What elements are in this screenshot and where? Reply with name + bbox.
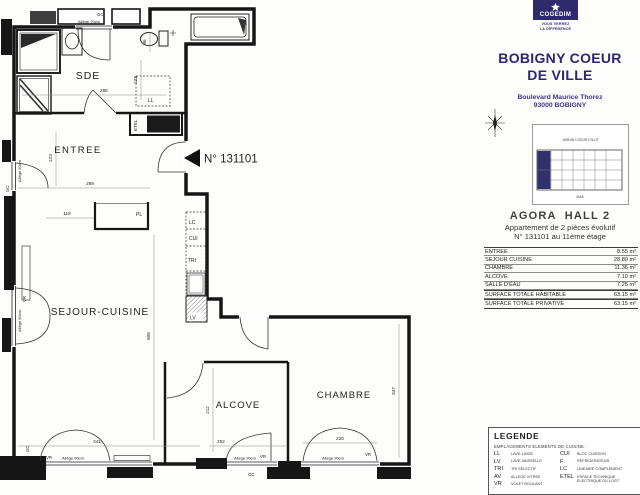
legend-item: LLLAVE-LINGE xyxy=(494,451,560,457)
dim-252: 252 xyxy=(217,439,225,444)
project-title: BOBIGNY COEUR DE VILLE xyxy=(482,50,638,84)
dim-608: 608 xyxy=(146,332,151,340)
label-allege-90-left1: Allège 90cm xyxy=(17,159,22,182)
label-tri: TRI xyxy=(188,258,196,264)
cogedim-logo: COGEDIM xyxy=(533,0,578,20)
label-gc-bottom: GC xyxy=(248,472,255,477)
legend-abbr: LL xyxy=(494,451,511,457)
legend: LEGENDE EMPLACEMENTS ELEMENTS DE CUISINE… xyxy=(488,427,640,495)
legend-desc: LAVE-VAISSELLE xyxy=(511,459,542,464)
legend-abbr: F xyxy=(560,459,577,465)
label-gc-bottomleft: GC xyxy=(25,445,30,452)
unit-number-text: N° 131101 xyxy=(204,154,258,166)
row-value: 28.89 m² xyxy=(614,257,636,263)
address-line1: Boulevard Maurice Thorez xyxy=(482,94,638,102)
legend-desc: BLOC CUISSON xyxy=(577,451,606,456)
label-lc: LC xyxy=(189,220,196,226)
dim-341: 341 xyxy=(93,439,101,444)
legend-desc: REFRIGERATEUR xyxy=(577,459,609,464)
cogedim-star-icon xyxy=(551,3,560,11)
row-label: ENTREE xyxy=(485,249,508,255)
dim-347: 347 xyxy=(391,387,396,395)
apartment-unit-line: N° 131101 au 11ème étage xyxy=(482,232,638,241)
shower xyxy=(17,30,60,73)
legend-abbr: AV xyxy=(494,474,511,480)
row-label: SALLE D'EAU xyxy=(485,282,521,288)
dim-289: 289 xyxy=(86,181,94,186)
table-row-total-privative: SURFACE TOTALE PRIVATIVE63.15 m² xyxy=(484,299,638,307)
scanned-floorplan-page: { "branding": { "logo_text": "COGEDIM", … xyxy=(0,0,640,480)
row-value: 7.25 m² xyxy=(617,282,636,288)
table-row: CHAMBRE11.36 m² xyxy=(484,265,638,273)
table-row: ENTREE8.55 m² xyxy=(484,248,638,256)
compass-icon xyxy=(482,108,508,138)
dim-118: 118 xyxy=(63,211,71,216)
row-label: SEJOUR CUISINE xyxy=(485,257,532,263)
legend-subtitle: EMPLACEMENTS ELEMENTS DE CUISINE : xyxy=(494,444,640,449)
row-label: CHAMBRE xyxy=(485,265,513,271)
legend-item: CUIBLOC CUISSON xyxy=(560,451,632,457)
label-gc-left: GC xyxy=(5,185,10,192)
row-label: SURFACE TOTALE PRIVATIVE xyxy=(485,301,564,307)
wall-annotations: GC GC GC GC VR VR VR VR Allège 70cm Allè… xyxy=(5,12,371,477)
dim-123: 123 xyxy=(133,76,138,84)
legend-item: ETELESPACE TECHNIQUE ELECTRIQUE DU LOGT xyxy=(560,474,632,483)
tagline-line2: LA DIFFÉRENCE xyxy=(528,27,583,32)
row-label: ALCOVE xyxy=(485,274,508,280)
legend-column-1: LLLAVE-LINGE LVLAVE-VAISSELLE TRITRI SEL… xyxy=(494,451,560,487)
legend-abbr: LV xyxy=(494,459,511,465)
table-row: ALCOVE7.10 m² xyxy=(484,273,638,281)
legend-item: LCLINEAIRE COMPLEMENT xyxy=(560,466,632,472)
label-vr-chambre: VR xyxy=(365,452,371,457)
row-value: 11.36 m² xyxy=(614,265,636,271)
legend-item: TRITRI SELECTIF xyxy=(494,466,560,472)
key-plan: JARDIN COEUR D'ILOT MAIL xyxy=(532,124,629,205)
label-vr-alcove: VR xyxy=(260,454,266,459)
bathtub xyxy=(191,14,249,40)
hall-title: AGORA HALL 2 xyxy=(482,210,638,222)
row-value: 63.15 m² xyxy=(614,301,636,307)
dim-226: 226 xyxy=(336,436,344,441)
label-allege-90-alcove: Allège 90cm xyxy=(234,456,257,461)
surface-table: ENTREE8.55 m² SEJOUR CUISINE28.89 m² CHA… xyxy=(484,247,638,309)
label-gc-top: GC xyxy=(97,12,104,17)
legend-abbr: TRI xyxy=(494,466,511,472)
label-ll: LL xyxy=(148,98,154,104)
legend-desc: ALLEGE VITREE xyxy=(511,474,541,479)
row-value: 7.10 m² xyxy=(617,274,636,280)
row-value: 8.55 m² xyxy=(617,249,636,255)
apartment-type: Appartement de 2 pièces évolutif xyxy=(482,223,638,232)
label-lv: LV xyxy=(190,316,196,322)
label-allege-90-chambre: Allège 90cm xyxy=(322,456,345,461)
washbasin xyxy=(62,28,82,55)
legend-item: VRVOLET ROULANT xyxy=(494,481,560,487)
legend-abbr: LC xyxy=(560,466,577,472)
dim-96: 96 xyxy=(142,39,147,45)
row-label: SURFACE TOTALE HABITABLE xyxy=(485,292,566,298)
label-allege-70: Allège 70cm xyxy=(78,19,101,24)
legend-item: AVALLEGE VITREE xyxy=(494,474,560,480)
legend-desc: TRI SELECTIF xyxy=(511,466,536,471)
legend-desc: LINEAIRE COMPLEMENT xyxy=(577,466,622,471)
room-label-entree: ENTREE xyxy=(54,145,102,156)
cogedim-logo-text: COGEDIM xyxy=(540,12,571,20)
legend-item: LVLAVE-VAISSELLE xyxy=(494,459,560,465)
etel-shaft xyxy=(147,116,180,133)
room-labels: SDE ENTREE SEJOUR-CUISINE ALCOVE CHAMBRE xyxy=(51,70,371,411)
key-plan-bottom-label: MAIL xyxy=(533,195,628,199)
interior-walls xyxy=(14,113,288,464)
legend-desc: VOLET ROULANT xyxy=(511,481,543,486)
room-label-sejour: SEJOUR-CUISINE xyxy=(51,307,149,318)
table-row-total-habitable: SURFACE TOTALE HABITABLE63.15 m² xyxy=(484,290,638,299)
label-allege-90-left2: Allège 90cm xyxy=(17,309,22,332)
legend-column-2: CUIBLOC CUISSON FREFRIGERATEUR LCLINEAIR… xyxy=(560,451,632,487)
dim-223: 223 xyxy=(48,154,53,162)
label-allege-90-sejour: Allège 90cm xyxy=(62,456,85,461)
room-label-chambre: CHAMBRE xyxy=(317,390,372,401)
label-vr-left: VR xyxy=(22,296,27,302)
legend-desc: LAVE-LINGE xyxy=(511,451,533,456)
legend-item: FREFRIGERATEUR xyxy=(560,459,632,465)
dim-286: 286 xyxy=(100,88,108,93)
legend-abbr: ETEL xyxy=(560,474,577,480)
project-title-line1: BOBIGNY COEUR xyxy=(482,50,638,67)
room-label-sde: SDE xyxy=(76,70,101,82)
room-label-alcove: ALCOVE xyxy=(216,400,261,411)
cogedim-tagline: VOUS VERREZ LA DIFFÉRENCE xyxy=(528,22,583,31)
dimension-labels: 286 289 223 118 123 96 608 341 252 212 2… xyxy=(48,39,396,444)
key-plan-drawing xyxy=(536,149,624,193)
table-row: SALLE D'EAU7.25 m² xyxy=(484,282,638,290)
legend-desc: ESPACE TECHNIQUE ELECTRIQUE DU LOGT xyxy=(577,474,632,483)
table-row: SEJOUR CUISINE28.89 m² xyxy=(484,256,638,264)
key-plan-top-label: JARDIN COEUR D'ILOT xyxy=(533,138,628,142)
legend-abbr: CUI xyxy=(560,451,577,457)
label-pl: PL xyxy=(136,212,142,218)
legend-abbr: VR xyxy=(494,481,511,487)
row-value: 63.15 m² xyxy=(614,292,636,298)
project-title-line2: DE VILLE xyxy=(482,67,638,84)
legend-title: LEGENDE xyxy=(494,431,640,441)
label-cui: CUI xyxy=(189,236,198,242)
unit-number-marker: N° 131101 xyxy=(184,149,258,167)
floor-plan: 286 289 223 118 123 96 608 341 252 212 2… xyxy=(0,0,478,480)
label-etel: ETEL xyxy=(133,119,138,131)
dim-212: 212 xyxy=(205,406,210,414)
label-vr-sejour: VR xyxy=(46,455,52,460)
